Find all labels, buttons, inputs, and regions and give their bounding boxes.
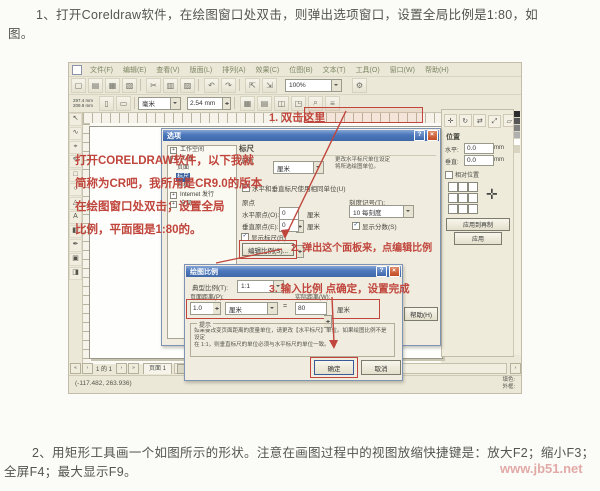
page-indicator: 1 的 1 [96,364,112,373]
toolbar-separator [198,79,199,91]
options-dialog-titlebar[interactable]: 选项 ? × [163,130,439,141]
help-icon[interactable]: ? [376,266,387,277]
position-label: 位置 [446,132,460,142]
toolbar-separator [134,97,135,109]
options-icon[interactable]: ⚙ [352,78,367,93]
standard-toolbar: ▢ ▤ ▦ ▧ ✂ ▥ ▨ ↶ ↷ ⇱ ⇲ 100% ⚙ [69,76,521,95]
nudge-value: 2.54 mm [190,100,215,107]
hint-groupbox: 提示 如果要改变页面距离的度量单位，请更改【水平标尺】单位。如果绘图比例不是设定… [190,323,395,357]
menu-view[interactable]: 查看(V) [151,65,184,75]
menu-window[interactable]: 窗口(W) [385,65,420,75]
toolbar-separator [140,79,141,91]
canvas-note-line1: 打开CORELDRAW软件，以下我就 [75,155,254,167]
paper-size-fields[interactable]: 297.4 mm 209.9 mm [73,98,93,109]
nudge-spinner[interactable] [223,97,231,110]
cm-label: 厘米 [337,304,350,314]
app-icon [72,65,82,75]
units-value: 毫米 [142,98,155,108]
menu-bar: 文件(F) 编辑(E) 查看(V) 版面(L) 排列(A) 效果(C) 位图(B… [69,63,521,77]
size-icon[interactable]: ⤢ [488,115,501,128]
ok-button[interactable]: 确定 [314,360,354,375]
chevron-down-icon[interactable] [267,303,277,314]
menu-arrange[interactable]: 排列(A) [217,65,250,75]
equals-sign: = [283,303,287,310]
menu-text[interactable]: 文本(T) [318,65,351,75]
nudge-field[interactable]: 2.54 mm [187,97,223,110]
chevron-down-icon[interactable] [403,206,413,217]
fill-outline-status: 填色: 外框: [502,377,515,391]
options-help-button[interactable]: 帮助(H) [404,307,438,321]
page-tab[interactable]: 页面 1 [143,363,172,374]
import-icon[interactable]: ⇱ [245,78,260,93]
shape-tool-icon[interactable]: ∿ [69,127,82,140]
apply-to-duplicate-button[interactable]: 应用到再制 [446,218,510,231]
chevron-down-icon[interactable] [170,98,180,109]
close-icon[interactable]: × [389,266,400,277]
menu-effects[interactable]: 效果(C) [251,65,285,75]
menu-tools[interactable]: 工具(O) [351,65,385,75]
checkbox-icon[interactable] [445,171,453,179]
h-position-field[interactable]: 0.0 [464,143,494,154]
show-fractions-checkbox[interactable]: ✓ 显示分数(S) [352,221,397,231]
units-combo[interactable]: 毫米 [138,97,181,110]
next-page-icon[interactable]: › [116,363,127,374]
menu-help[interactable]: 帮助(H) [420,65,454,75]
v-label: 垂直: [445,157,459,166]
annotation-3: 3. 输入比例 点确定，设置完成 [269,281,410,296]
prev-page-icon[interactable]: ‹ [82,363,93,374]
h-label: 水平: [445,145,459,154]
page-distance-spinner[interactable] [213,302,221,315]
open-icon[interactable]: ▤ [88,78,103,93]
scale-dialog-title: 绘图比例 [186,267,376,277]
canvas-note-line4: 比例，平面图是1:80的。 [75,224,202,236]
save-icon[interactable]: ▦ [105,78,120,93]
apply-button[interactable]: 应用 [454,232,502,245]
hint-title: 提示 [197,320,213,329]
real-distance-field[interactable]: 80 [295,302,327,315]
h-unit-label: mm [494,145,504,151]
menu-bitmaps[interactable]: 位图(B) [284,65,317,75]
pick-tool-icon[interactable]: ↖ [69,113,82,126]
cut-icon[interactable]: ✂ [146,78,161,93]
paper-height-value: 209.9 mm [73,103,93,109]
landscape-icon[interactable]: ▭ [116,96,131,111]
zoom-level-combo[interactable]: 100% [285,79,342,92]
annotation-1: 1. 双击这里 [269,109,325,125]
typical-scale-label: 典型比例(T): [192,282,228,292]
page-distance-unit-combo[interactable]: 厘米 [225,302,278,315]
step1-line2: 图。 [8,27,34,41]
copy-icon[interactable]: ▥ [163,78,178,93]
edit-scale-button[interactable]: 编辑比例(S)... [242,243,294,256]
options-dialog-title: 选项 [163,131,414,141]
site-watermark: www.jb51.net [500,461,583,476]
chevron-down-icon[interactable] [331,80,341,91]
tick-combo[interactable]: 10 每刻度 [349,205,414,218]
outline-tool-icon[interactable]: ▣ [69,253,82,266]
unit-hint: 更改水平标尺单位设定 将所选绘图单位。 [335,157,435,171]
menu-edit[interactable]: 编辑(E) [118,65,151,75]
first-page-icon[interactable]: « [70,363,81,374]
snap-grid-icon[interactable]: ▦ [240,96,255,111]
rotate-icon[interactable]: ↻ [459,114,472,127]
v-unit-label: mm [494,157,504,163]
help-icon[interactable]: ? [414,130,425,141]
canvas-note-line3: 在绘图窗口处双击；设置全局 [75,201,225,213]
scroll-right-icon[interactable]: › [510,363,521,374]
step2-line1: 2、用矩形工具画一个如图所示的形状。注意在画图过程中的视图放缩快捷键是：放大F2… [4,446,594,460]
coreldraw-window: 文件(F) 编辑(E) 查看(V) 版面(L) 排列(A) 效果(C) 位图(B… [68,62,522,394]
tutorial-step1-text: 1、打开Coreldraw软件，在绘图窗口处双击，则弹出选项窗口，设置全局比例是… [8,6,594,44]
transformation-docker: ✛ ↻ ⇄ ⤢ ▱ 位置 水平: 0.0 mm 垂直: 0.0 mm 相对位置 … [441,109,514,357]
step2-line2: 全屏F4；最大显示F9。 [4,465,137,479]
new-icon[interactable]: ▢ [71,78,86,93]
undo-icon[interactable]: ↶ [204,78,219,93]
print-icon[interactable]: ▧ [122,78,137,93]
fill-tool-icon[interactable]: ◨ [69,267,82,280]
cursor-coordinates: (-117.482, 263.936) [75,380,132,387]
crosshair-icon: ✛ [486,186,498,203]
canvas-note-line2: 简称为CR吧，我所用是CR9.0的版本 [75,178,262,190]
cancel-button[interactable]: 取消 [361,360,401,375]
portrait-icon[interactable]: ▯ [99,96,114,111]
docker-tabs: ✛ ↻ ⇄ ⤢ ▱ [444,114,516,128]
zoom-level-value: 100% [289,82,306,89]
position-icon[interactable]: ✛ [444,114,457,127]
relative-position-checkbox[interactable]: 相对位置 [445,170,479,179]
mirror-icon[interactable]: ⇄ [473,114,486,127]
scale-dialog-titlebar[interactable]: 绘图比例 ? × [186,266,401,277]
drawing-scale-dialog: 绘图比例 ? × 典型比例(T): 1:1 3. 输入比例 点确定，设置完成 页… [184,264,403,381]
close-icon[interactable]: × [427,130,438,141]
paste-icon[interactable]: ▨ [180,78,195,93]
toolbar-separator [239,79,240,91]
v-position-field[interactable]: 0.0 [464,155,494,166]
redo-icon[interactable]: ↷ [221,78,236,93]
step1-line1: 1、打开Coreldraw软件，在绘图窗口处双击，则弹出选项窗口，设置全局比例是… [8,8,538,22]
menu-layout[interactable]: 版面(L) [185,65,218,75]
menu-file[interactable]: 文件(F) [85,65,118,75]
last-page-icon[interactable]: » [128,363,139,374]
toolbar-separator [234,97,235,109]
checkbox-icon[interactable]: ✓ [352,222,360,230]
anchor-grid[interactable] [448,182,478,215]
color-palette[interactable] [513,111,521,355]
export-icon[interactable]: ⇲ [262,78,277,93]
annotation-canvas-note: 打开CORELDRAW软件，以下我就 简称为CR吧，我所用是CR9.0的版本 在… [75,150,315,242]
